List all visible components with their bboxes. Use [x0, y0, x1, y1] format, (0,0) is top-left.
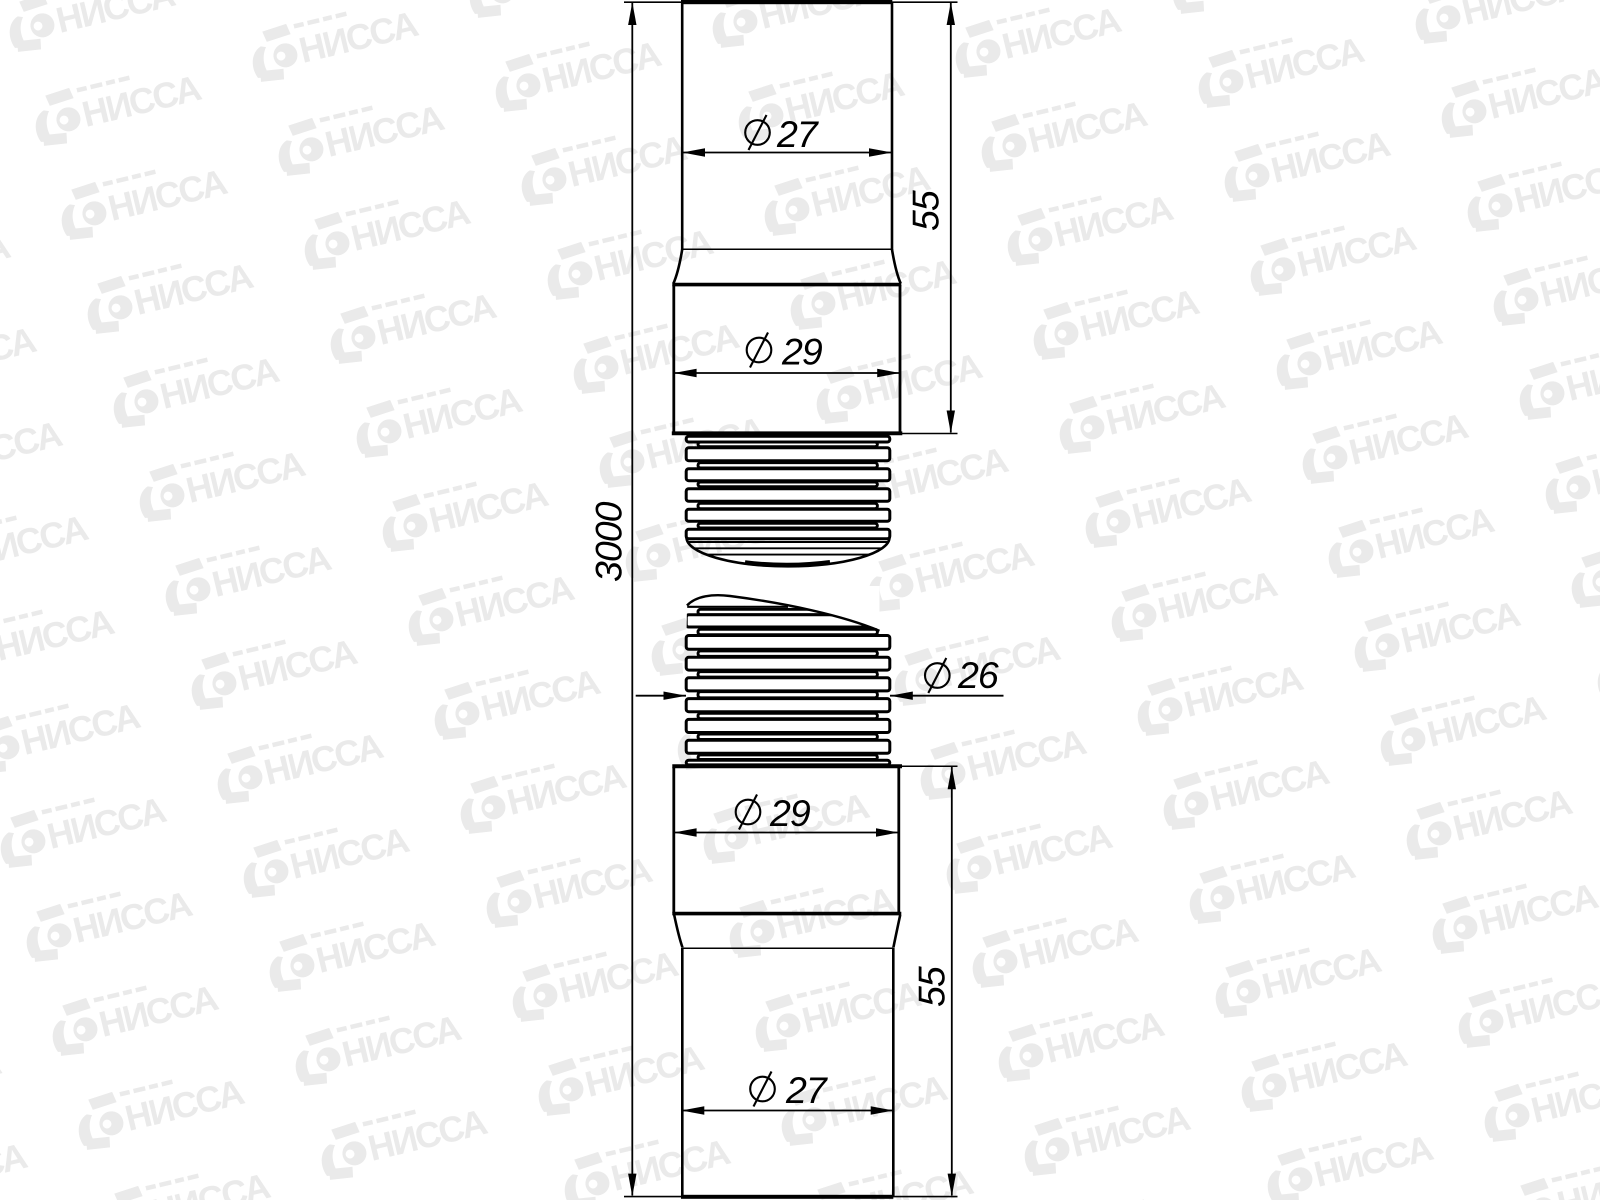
- svg-text:27: 27: [785, 1069, 829, 1111]
- svg-text:3000: 3000: [588, 501, 630, 582]
- svg-text:29: 29: [769, 792, 811, 834]
- svg-text:55: 55: [905, 190, 947, 231]
- svg-text:26: 26: [957, 654, 999, 696]
- svg-text:29: 29: [781, 331, 823, 373]
- svg-text:55: 55: [911, 966, 953, 1007]
- svg-text:27: 27: [776, 113, 820, 155]
